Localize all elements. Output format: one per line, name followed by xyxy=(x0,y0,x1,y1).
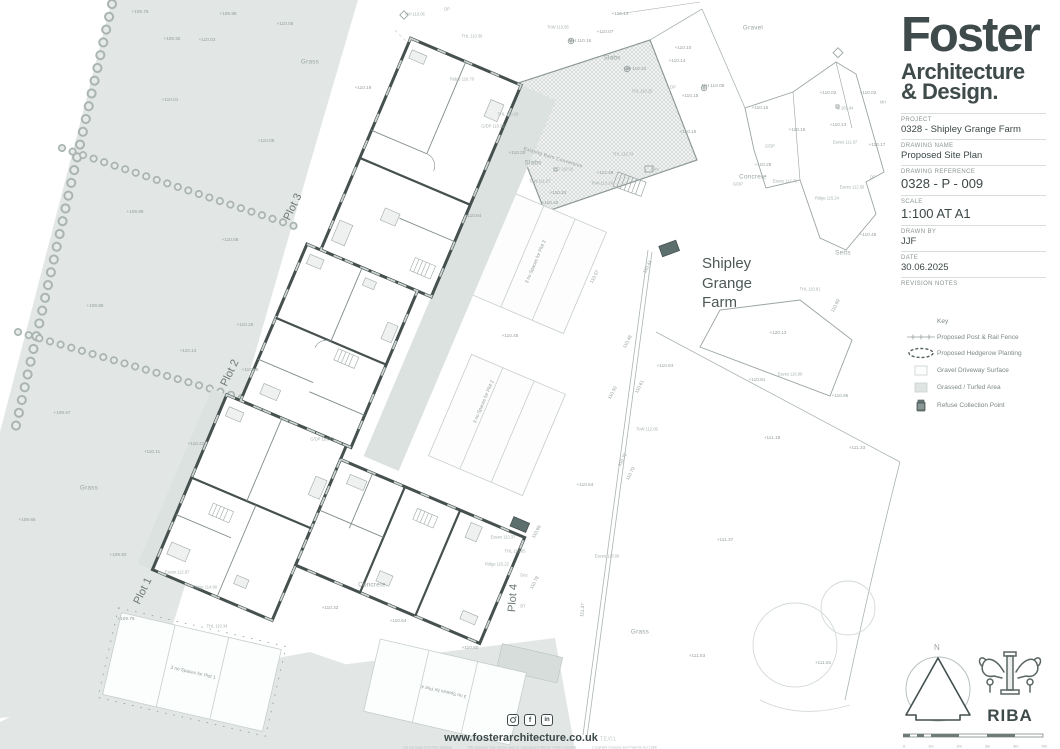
footer: f in www.fosterarchitecture.co.ukTE/01 D… xyxy=(380,714,680,749)
field-value: 0328 - P - 009 xyxy=(901,176,1046,191)
scale-tick-label: 5m xyxy=(1042,745,1047,749)
refuse-bin-icon xyxy=(905,399,937,412)
field-label: PROJECT xyxy=(901,117,1046,123)
legend-item: Gravel Driveway Surface xyxy=(905,365,1055,376)
social-icons: f in xyxy=(380,714,680,726)
field-drawing-reference: DRAWING REFERENCE0328 - P - 009 xyxy=(901,165,1046,195)
hedgerow-symbol xyxy=(905,347,937,359)
facebook-icon[interactable]: f xyxy=(524,714,536,726)
legend-items: Proposed Post & Rail FenceProposed Hedge… xyxy=(905,333,1055,412)
grass-swatch xyxy=(905,382,937,393)
riba-crest-icon xyxy=(978,650,1042,700)
parking-plot-2 xyxy=(429,354,566,495)
firm-logo: Foster Architecture & Design. xyxy=(901,12,1046,103)
legend-item: Grassed / Turfed Area xyxy=(905,382,1055,393)
field-project: PROJECT0328 - Shipley Grange Farm xyxy=(901,113,1046,139)
legend-item: Proposed Post & Rail Fence xyxy=(905,333,1055,341)
legend-item-label: Proposed Post & Rail Fence xyxy=(937,334,1019,341)
gravel-swatch xyxy=(905,365,937,376)
field-value: 30.06.2025 xyxy=(901,262,1046,273)
scale-tick-label: 4m xyxy=(1013,745,1018,749)
field-scale: SCALE1:100 AT A1 xyxy=(901,195,1046,225)
scale-bar-labels: 01m2m3m4m5m xyxy=(903,745,1047,749)
legend-item: Proposed Hedgerow Planting xyxy=(905,347,1055,359)
revision-code: TE/01 xyxy=(600,737,616,743)
website-link[interactable]: www.fosterarchitecture.co.uk xyxy=(444,732,598,744)
field-label: SCALE xyxy=(901,199,1046,205)
field-label: DRAWING REFERENCE xyxy=(901,169,1046,175)
riba-badge: RIBA xyxy=(975,650,1045,726)
legend-item-label: Proposed Hedgerow Planting xyxy=(937,350,1022,357)
scale-bar: 01m2m3m4m5m xyxy=(903,726,1047,749)
north-arrow-icon xyxy=(900,645,980,725)
refuse-collection-point-drive xyxy=(659,240,680,256)
north-arrow: N xyxy=(900,645,980,730)
legend-title: Key xyxy=(937,318,1055,325)
field-label: DRAWING NAME xyxy=(901,143,1046,149)
field-drawn-by: DRAWN BYJJF xyxy=(901,225,1046,251)
scale-bar-graphic xyxy=(903,733,1047,739)
field-drawing-name: DRAWING NAMEProposed Site Plan xyxy=(901,139,1046,165)
scale-tick-label: 2m xyxy=(957,745,962,749)
field-label: DRAWN BY xyxy=(901,229,1046,235)
field-date: DATE30.06.2025 xyxy=(901,251,1046,277)
linkedin-icon[interactable]: in xyxy=(541,714,553,726)
legend-item-label: Grassed / Turfed Area xyxy=(937,384,1001,391)
field-value: Proposed Site Plan xyxy=(901,150,1046,161)
north-label: N xyxy=(934,643,940,652)
legend-item-label: Refuse Collection Point xyxy=(937,402,1005,409)
site-plan-page: +109.76+109.98+110.05+109.92+110.03Grass… xyxy=(0,0,1060,749)
title-block: Foster Architecture & Design. PROJECT032… xyxy=(897,0,1052,292)
fence-symbol xyxy=(905,333,937,341)
riba-label: RIBA xyxy=(975,706,1045,726)
legend: Key Proposed Post & Rail FenceProposed H… xyxy=(905,318,1055,418)
logo-line-3: & Design. xyxy=(901,82,1046,103)
legend-item: Refuse Collection Point xyxy=(905,399,1055,412)
title-block-fields: PROJECT0328 - Shipley Grange FarmDRAWING… xyxy=(901,113,1046,292)
field-revision-notes: REVISION NOTES xyxy=(901,277,1046,292)
field-value: 1:100 AT A1 xyxy=(901,206,1046,221)
field-label: REVISION NOTES xyxy=(901,281,1046,287)
instagram-icon[interactable] xyxy=(507,714,519,726)
existing-farmhouse xyxy=(700,48,884,396)
legend-item-label: Gravel Driveway Surface xyxy=(937,367,1009,374)
scale-tick-label: 1m xyxy=(928,745,933,749)
refuse-collection-point-plot4 xyxy=(510,517,530,533)
logo-line-1: Foster xyxy=(901,12,1046,59)
scale-tick-label: 0 xyxy=(903,745,905,749)
field-value: JJF xyxy=(901,236,1046,247)
building-plot-4 xyxy=(296,459,525,643)
field-label: DATE xyxy=(901,255,1046,261)
field-value: 0328 - Shipley Grange Farm xyxy=(901,124,1046,135)
scale-tick-label: 3m xyxy=(985,745,990,749)
